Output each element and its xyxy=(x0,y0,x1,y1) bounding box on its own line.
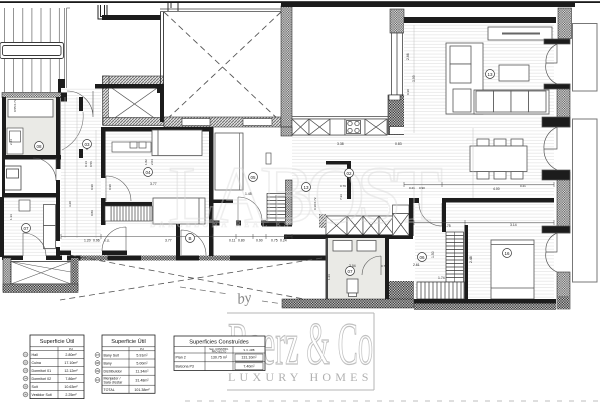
svg-text:Bany: Bany xyxy=(104,362,112,366)
svg-text:0.90: 0.90 xyxy=(256,239,263,243)
svg-text:0.55 0.73: 0.55 0.73 xyxy=(13,99,17,112)
svg-text:P.2: P.2 xyxy=(140,347,144,351)
svg-text:2.04: 2.04 xyxy=(150,159,154,165)
svg-text:5.91m²: 5.91m² xyxy=(136,354,148,358)
svg-text:1.33: 1.33 xyxy=(9,214,13,220)
svg-text:06: 06 xyxy=(419,255,425,260)
svg-text:BARCELONA REAL ES: BARCELONA REAL ES xyxy=(150,220,292,229)
svg-text:3.77: 3.77 xyxy=(165,239,172,243)
svg-text:1.23: 1.23 xyxy=(327,274,331,280)
svg-text:06: 06 xyxy=(24,393,27,397)
svg-text:07: 07 xyxy=(347,269,353,274)
svg-text:0.72: 0.72 xyxy=(381,264,387,268)
svg-text:3.14: 3.14 xyxy=(510,223,517,227)
svg-text:130.75 m²: 130.75 m² xyxy=(211,356,228,360)
svg-text:11.34m²: 11.34m² xyxy=(136,370,150,374)
svg-text:0.11: 0.11 xyxy=(104,239,110,243)
svg-text:12.12m²: 12.12m² xyxy=(64,369,78,373)
svg-text:2.80m²: 2.80m² xyxy=(65,353,77,357)
svg-text:02: 02 xyxy=(24,361,27,365)
svg-text:0.83: 0.83 xyxy=(395,142,402,146)
svg-text:4.00: 4.00 xyxy=(493,187,500,191)
svg-text:03: 03 xyxy=(84,142,90,147)
svg-text:1.45: 1.45 xyxy=(245,192,252,196)
svg-text:1.50: 1.50 xyxy=(431,251,435,258)
svg-text:2.04: 2.04 xyxy=(349,264,356,268)
svg-text:13: 13 xyxy=(487,72,493,77)
svg-text:2.66: 2.66 xyxy=(406,53,410,60)
svg-text:Cuina: Cuina xyxy=(32,361,41,365)
svg-text:0.89: 0.89 xyxy=(90,210,94,216)
svg-text:31.48m²: 31.48m² xyxy=(135,379,149,383)
svg-text:0.10 0.72: 0.10 0.72 xyxy=(313,197,317,210)
svg-text:101.38m²: 101.38m² xyxy=(134,388,150,392)
svg-text:2.48: 2.48 xyxy=(469,256,473,263)
svg-text:07: 07 xyxy=(96,353,99,357)
svg-text:0.75: 0.75 xyxy=(271,239,278,243)
svg-text:S. C. AMB: S. C. AMB xyxy=(243,349,254,352)
svg-text:7.40m²: 7.40m² xyxy=(243,365,255,369)
svg-text:Vestidor Suit: Vestidor Suit xyxy=(32,393,52,397)
svg-text:7.86m²: 7.86m² xyxy=(65,377,77,381)
svg-text:7.33: 7.33 xyxy=(339,194,343,200)
svg-text:2.61: 2.61 xyxy=(413,263,420,267)
svg-text:10: 10 xyxy=(96,378,99,382)
svg-text:04: 04 xyxy=(145,170,151,175)
svg-text:0.80: 0.80 xyxy=(238,239,245,243)
svg-text:1.82: 1.82 xyxy=(144,159,148,165)
svg-text:PROYECTO: PROYECTO xyxy=(212,350,227,354)
svg-text:01: 01 xyxy=(24,353,27,357)
svg-text:0.96: 0.96 xyxy=(93,239,100,243)
svg-text:0.21: 0.21 xyxy=(409,186,415,190)
svg-text:10.63m²: 10.63m² xyxy=(64,385,78,389)
svg-text:05: 05 xyxy=(24,385,27,389)
svg-text:by: by xyxy=(236,290,253,308)
svg-text:0.11: 0.11 xyxy=(229,239,235,243)
svg-text:Hall: Hall xyxy=(32,353,38,357)
svg-text:13: 13 xyxy=(303,185,309,190)
svg-text:Sala d'estar: Sala d'estar xyxy=(104,381,124,385)
svg-text:1.74: 1.74 xyxy=(438,276,445,280)
svg-text:0.30: 0.30 xyxy=(406,89,410,95)
svg-text:Balcona P3: Balcona P3 xyxy=(176,365,194,369)
svg-text:LUXURY HOMES: LUXURY HOMES xyxy=(228,370,373,384)
svg-text:0.90: 0.90 xyxy=(108,184,112,190)
svg-text:07: 07 xyxy=(23,226,29,231)
svg-text:3.77: 3.77 xyxy=(150,182,157,186)
svg-text:P.2: P.2 xyxy=(69,347,73,351)
svg-text:Distribuïdor: Distribuïdor xyxy=(104,370,123,374)
svg-text:03: 03 xyxy=(24,369,27,373)
svg-text:3.20: 3.20 xyxy=(68,201,72,207)
svg-text:Bany Suit: Bany Suit xyxy=(104,354,119,358)
svg-text:08: 08 xyxy=(36,144,42,149)
svg-text:Superficies Construïdes: Superficies Construïdes xyxy=(189,340,249,346)
svg-text:0.14: 0.14 xyxy=(84,161,88,167)
svg-text:Superficie Útil: Superficie Útil xyxy=(111,338,146,345)
svg-text:08: 08 xyxy=(96,361,99,365)
svg-text:16: 16 xyxy=(504,251,510,256)
svg-text:0.90: 0.90 xyxy=(419,186,425,190)
svg-text:2.25m²: 2.25m² xyxy=(65,393,77,397)
svg-text:0.90: 0.90 xyxy=(90,184,94,190)
svg-text:04: 04 xyxy=(24,377,27,381)
svg-text:Plan 2: Plan 2 xyxy=(176,356,186,360)
svg-text:1.75: 1.75 xyxy=(444,224,451,228)
svg-text:0.56: 0.56 xyxy=(89,161,93,167)
svg-text:B: B xyxy=(188,236,191,241)
svg-text:0.79: 0.79 xyxy=(340,184,346,188)
svg-text:02: 02 xyxy=(346,171,352,176)
svg-text:17.10m²: 17.10m² xyxy=(64,361,78,365)
svg-text:Dormitori 02: Dormitori 02 xyxy=(32,377,52,381)
svg-text:0.24: 0.24 xyxy=(280,239,287,243)
svg-text:09: 09 xyxy=(96,369,99,373)
svg-text:5.00m²: 5.00m² xyxy=(136,362,148,366)
svg-text:1.20: 1.20 xyxy=(84,239,91,243)
svg-text:TOTAL: TOTAL xyxy=(104,388,115,392)
svg-text:3.38: 3.38 xyxy=(337,142,344,146)
svg-text:Superficie Útil: Superficie Útil xyxy=(40,338,75,345)
svg-text:2.24: 2.24 xyxy=(9,139,13,145)
svg-text:Dormitori 01: Dormitori 01 xyxy=(32,369,52,373)
svg-text:131.10m²: 131.10m² xyxy=(241,356,257,360)
svg-text:Suit: Suit xyxy=(32,385,38,389)
